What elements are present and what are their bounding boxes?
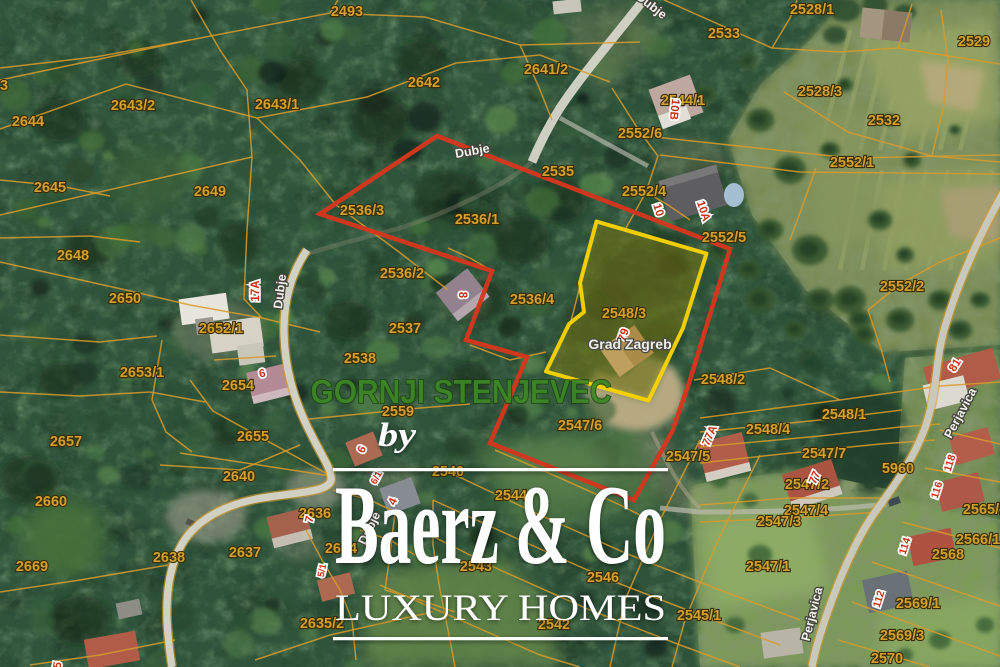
svg-text:2660: 2660	[35, 494, 67, 510]
svg-text:2538: 2538	[344, 351, 376, 367]
svg-text:2638: 2638	[153, 550, 185, 566]
svg-text:2535: 2535	[542, 164, 574, 180]
svg-text:2669: 2669	[16, 559, 48, 575]
svg-text:2552/2: 2552/2	[880, 279, 924, 295]
svg-text:LUXURY HOMES: LUXURY HOMES	[335, 588, 666, 629]
svg-text:2643/1: 2643/1	[255, 97, 299, 113]
svg-text:17A: 17A	[250, 280, 262, 301]
svg-text:Grad Zagreb: Grad Zagreb	[588, 336, 671, 352]
svg-text:2552/4: 2552/4	[622, 184, 666, 200]
svg-text:2548/2: 2548/2	[701, 372, 745, 388]
svg-text:2652/1: 2652/1	[199, 321, 243, 337]
svg-text:2654: 2654	[222, 378, 254, 394]
svg-text:2547/1: 2547/1	[746, 559, 790, 575]
svg-text:2569/3: 2569/3	[880, 628, 924, 644]
svg-text:2537: 2537	[389, 321, 421, 337]
svg-text:2536/2: 2536/2	[380, 266, 424, 282]
svg-text:2568: 2568	[932, 547, 964, 563]
svg-text:2532: 2532	[868, 113, 900, 129]
svg-text:2657: 2657	[50, 434, 82, 450]
svg-text:2545/1: 2545/1	[677, 608, 721, 624]
svg-text:2528/1: 2528/1	[790, 2, 834, 18]
svg-text:2536/3: 2536/3	[340, 203, 384, 219]
svg-text:Baerz & Co: Baerz & Co	[335, 463, 666, 588]
svg-text:GORNJI STENJEVEC: GORNJI STENJEVEC	[311, 373, 612, 410]
svg-text:2644: 2644	[12, 114, 44, 130]
svg-text:2533: 2533	[708, 26, 740, 42]
svg-text:2569/1: 2569/1	[896, 596, 940, 612]
svg-text:2548/1: 2548/1	[822, 407, 866, 423]
svg-text:10B: 10B	[667, 98, 681, 120]
svg-text:2552/1: 2552/1	[830, 155, 874, 171]
svg-text:2536/4: 2536/4	[510, 292, 554, 308]
svg-text:2552/5: 2552/5	[702, 230, 746, 246]
svg-text:2641/2: 2641/2	[524, 62, 568, 78]
svg-text:2536/1: 2536/1	[455, 212, 499, 228]
svg-text:2547/3: 2547/3	[757, 514, 801, 530]
svg-text:2547/5: 2547/5	[666, 449, 710, 465]
svg-text:2544/1: 2544/1	[661, 93, 705, 109]
svg-text:2547/6: 2547/6	[558, 418, 602, 434]
svg-text:2653/1: 2653/1	[120, 365, 164, 381]
svg-text:2493: 2493	[331, 4, 363, 20]
svg-text:2655: 2655	[237, 429, 269, 445]
svg-text:2552/6: 2552/6	[618, 126, 662, 142]
svg-text:2548/4: 2548/4	[746, 422, 790, 438]
svg-text:2528/3: 2528/3	[798, 84, 842, 100]
svg-text:5960: 5960	[882, 461, 914, 477]
svg-text:2566/1: 2566/1	[956, 532, 1000, 548]
svg-text:2548/3: 2548/3	[602, 306, 646, 322]
svg-text:2649: 2649	[194, 184, 226, 200]
svg-text:by: by	[378, 417, 417, 454]
svg-text:2640: 2640	[223, 469, 255, 485]
svg-text:2642: 2642	[408, 75, 440, 91]
svg-text:2648: 2648	[57, 248, 89, 264]
svg-text:8: 8	[456, 292, 468, 299]
svg-text:3: 3	[0, 78, 8, 94]
svg-text:2529: 2529	[958, 34, 990, 50]
svg-text:2547/7: 2547/7	[802, 446, 846, 462]
svg-text:2565/1: 2565/1	[963, 502, 1000, 518]
svg-text:2637: 2637	[229, 545, 261, 561]
svg-text:2645: 2645	[34, 180, 66, 196]
svg-text:2650: 2650	[109, 291, 141, 307]
svg-text:2570: 2570	[871, 651, 903, 667]
svg-text:2643/2: 2643/2	[111, 98, 155, 114]
